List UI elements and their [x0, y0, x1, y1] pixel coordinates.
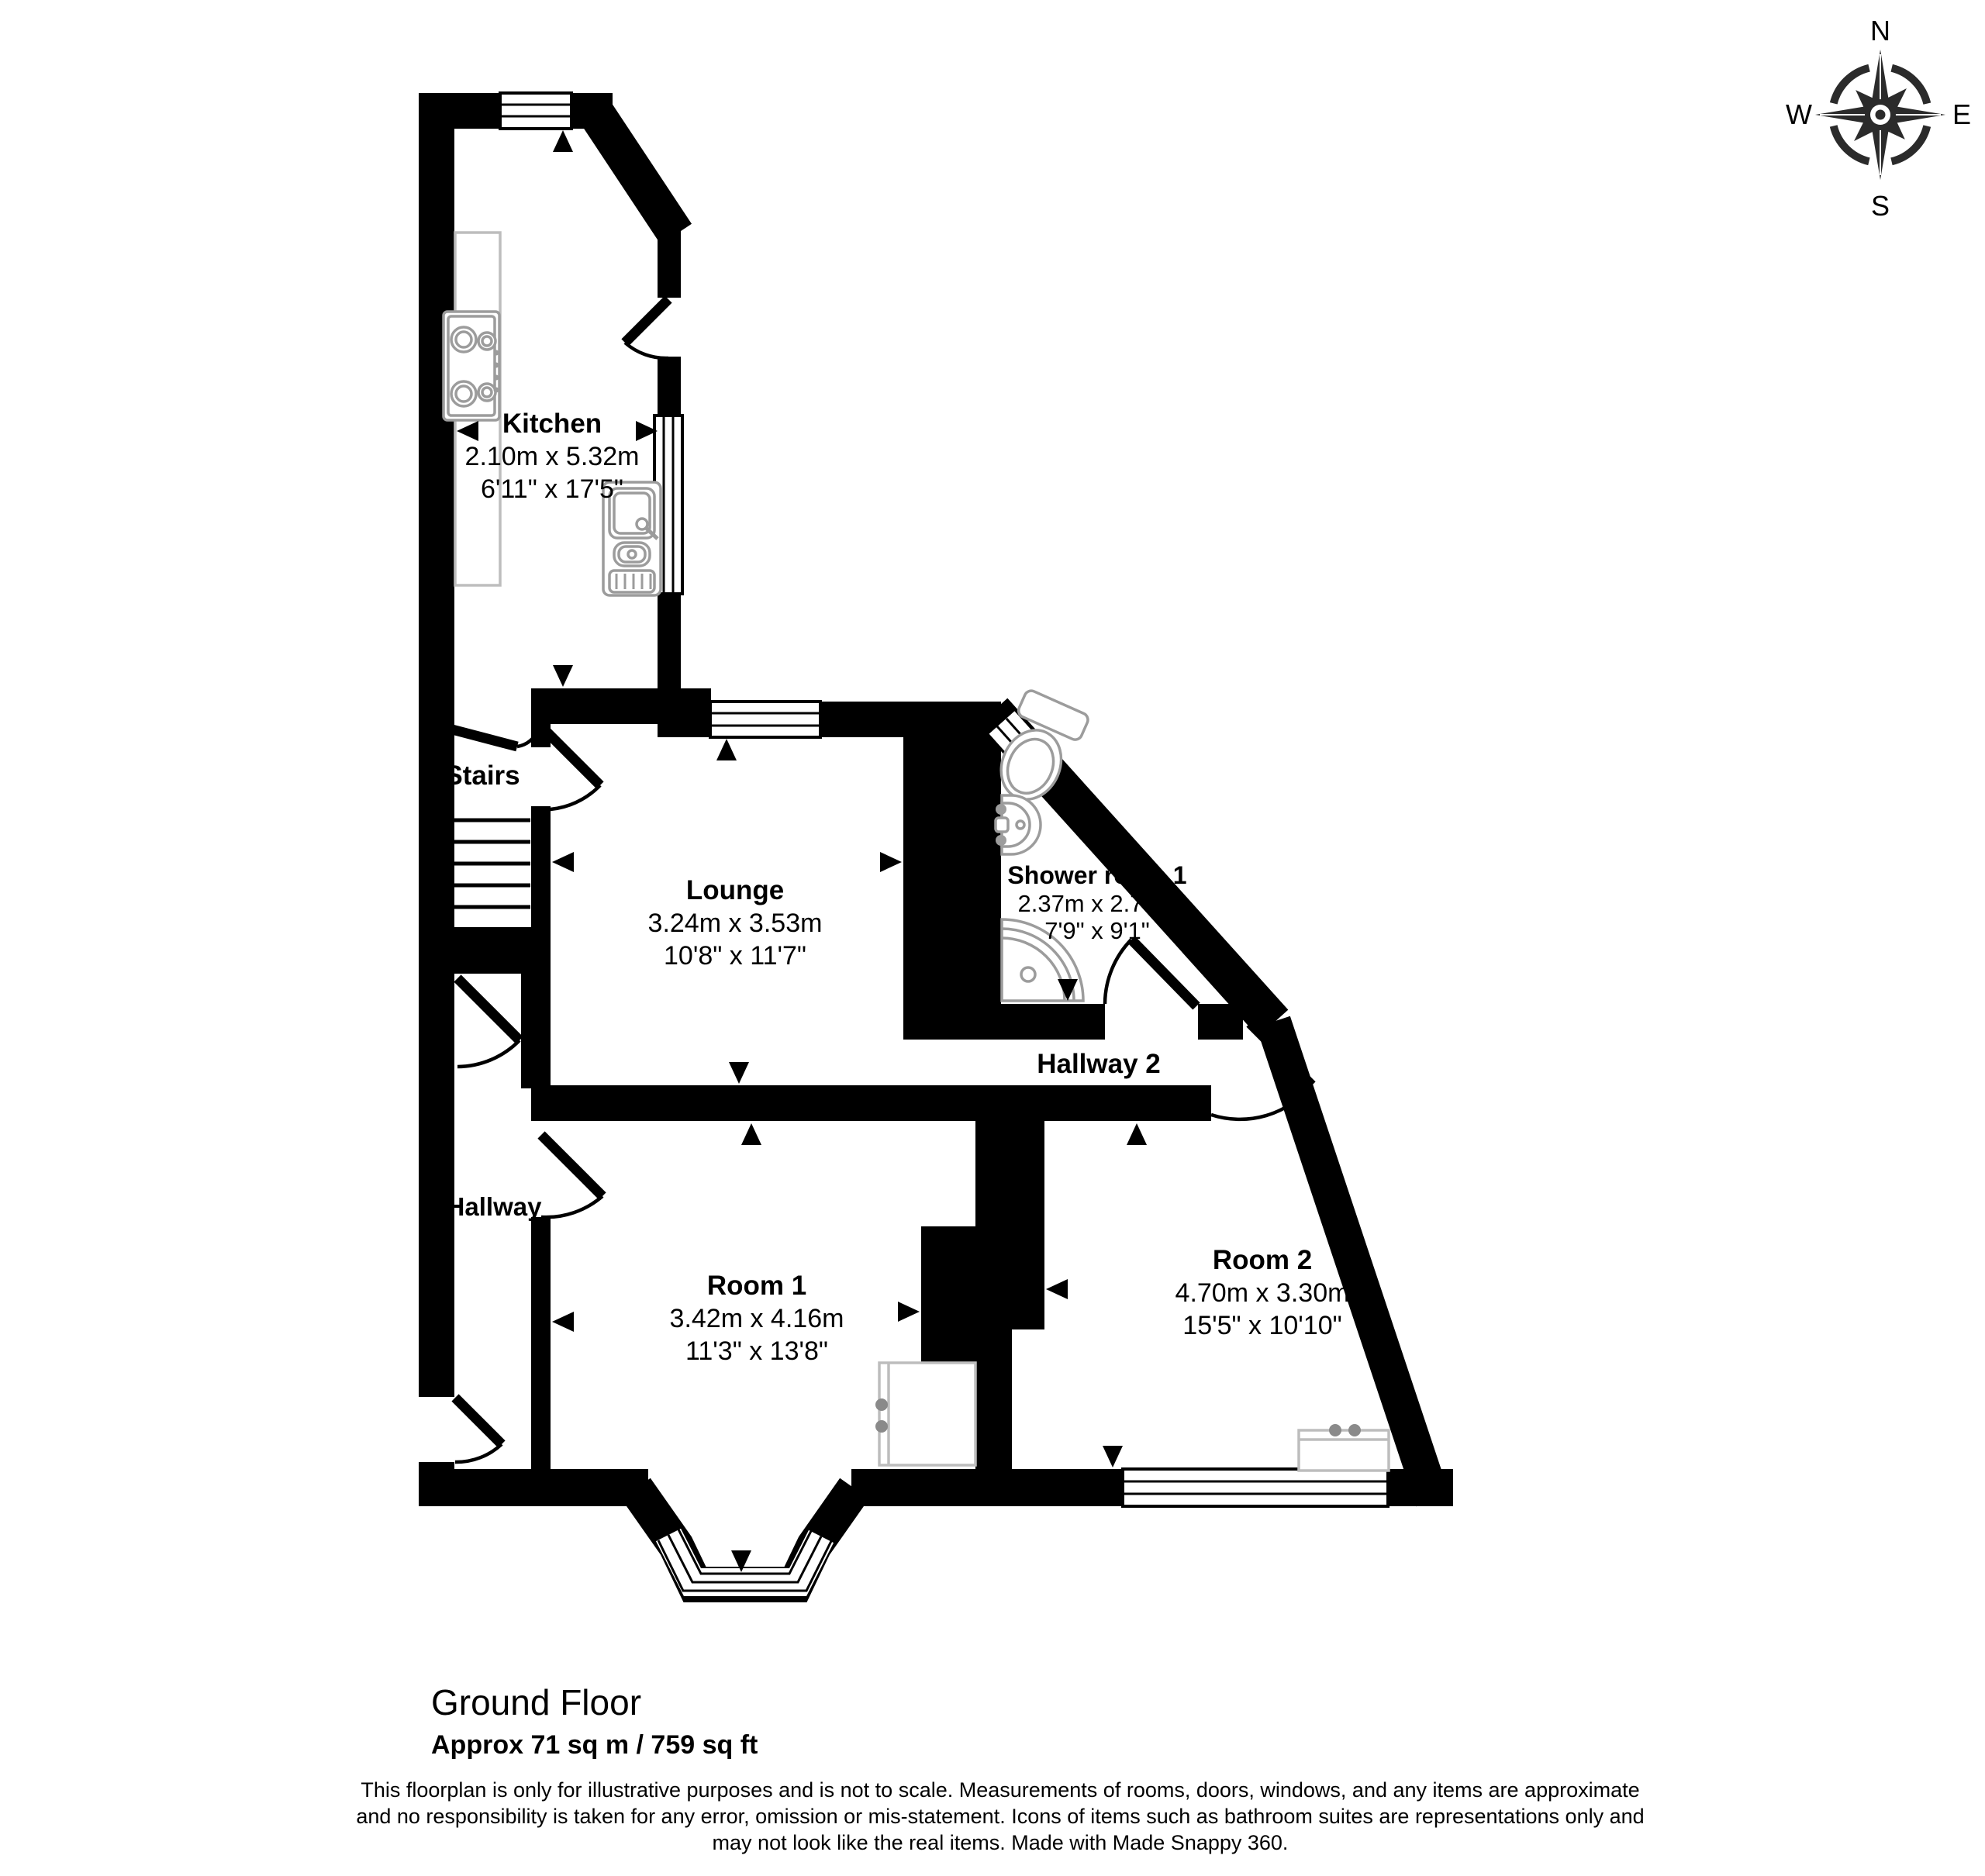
compass-label-e: E: [1952, 98, 1971, 130]
wall-rooms-top: [531, 1085, 1211, 1121]
room2-label: Room 2: [1213, 1245, 1312, 1275]
wall-kitchen-top-a: [419, 93, 504, 129]
wall-chimney-block: [903, 702, 1001, 1013]
wall-shower-bottom-a: [903, 1004, 1105, 1040]
disclaimer-line-2: and no responsibility is taken for any e…: [356, 1805, 1644, 1828]
room1-arrow-right: [898, 1302, 920, 1322]
wall-kitchen-right-b: [658, 357, 681, 417]
stairs-label: Stairs: [444, 760, 520, 791]
room1-arrow-left: [552, 1312, 574, 1332]
room2-bottom-window: [1123, 1469, 1388, 1506]
disclaimer-line-1: This floorplan is only for illustrative …: [361, 1778, 1639, 1802]
lounge-label: Lounge: [686, 875, 784, 905]
wall-divider-main: [975, 1085, 1012, 1469]
kitchen-arrow-up: [553, 130, 573, 152]
wall-stairs-right: [531, 806, 551, 929]
lounge-top-window: [710, 702, 820, 737]
hob-icon: [444, 312, 499, 420]
kitchen-arrow-down: [553, 665, 573, 687]
room2-dim-imperial: 15'5" x 10'10": [1182, 1311, 1341, 1340]
room2-dim-metric: 4.70m x 3.30m: [1175, 1278, 1350, 1308]
room1-vanity-unit: [875, 1363, 975, 1465]
shower-room-dim-metric: 2.37m x 2.77m: [1017, 890, 1176, 917]
lounge-arrow-up: [716, 739, 737, 760]
kitchen-dim-metric: 2.10m x 5.32m: [465, 442, 640, 471]
hallway-top-door: [457, 978, 520, 1067]
room2-desk-unit: [1299, 1424, 1389, 1471]
room2-arrow-up: [1127, 1123, 1147, 1145]
room-labels: Kitchen 2.10m x 5.32m 6'11" x 17'5" Stai…: [444, 409, 1349, 1366]
wall-stairs-bottom-band: [419, 927, 551, 974]
room1-arrow-up: [741, 1123, 761, 1145]
room2-arrow-left: [1046, 1279, 1068, 1299]
compass-label-n: N: [1870, 15, 1890, 47]
floor-area: Approx 71 sq m / 759 sq ft: [431, 1730, 758, 1760]
room1-dim-metric: 3.42m x 4.16m: [670, 1304, 844, 1333]
wall-bottom-a: [419, 1469, 648, 1506]
compass-label-w: W: [1786, 98, 1812, 130]
lounge-arrow-left: [552, 852, 574, 872]
wall-kitchen-diagonal: [594, 110, 676, 234]
kitchen-dim-imperial: 6'11" x 17'5": [481, 474, 623, 504]
room1-label: Room 1: [707, 1271, 806, 1301]
lounge-dim-metric: 3.24m x 3.53m: [648, 909, 823, 938]
room1-dim-imperial: 11'3" x 13'8": [685, 1336, 828, 1366]
front-door: [455, 1398, 502, 1462]
room2-arrow-down: [1103, 1446, 1123, 1467]
floor-title: Ground Floor: [431, 1682, 641, 1723]
room1-door: [541, 1135, 602, 1217]
kitchen-top-window: [500, 93, 571, 129]
wall-corridor-right: [521, 974, 551, 1088]
basin-icon: [996, 795, 1041, 854]
wall-kitchen-right-c: [658, 592, 681, 690]
wall-bottom-b: [851, 1469, 1123, 1506]
kitchen-label: Kitchen: [502, 409, 602, 439]
floorplan-canvas: N E S W Kitchen 2.10m x 5.32m 6'11" x 17…: [0, 0, 1985, 1876]
lounge-arrow-down: [729, 1062, 749, 1084]
shower-room-dim-imperial: 7'9" x 9'1": [1044, 917, 1150, 944]
hallway-label: Hallway: [447, 1192, 543, 1221]
wall-divider-flange-right: [1012, 1085, 1044, 1329]
lounge-dim-imperial: 10'8" x 11'7": [664, 941, 806, 971]
wall-room1-left: [531, 1217, 551, 1471]
lounge-arrow-right: [880, 852, 902, 872]
disclaimer-line-3: may not look like the real items. Made w…: [713, 1831, 1289, 1854]
hallway2-label: Hallway 2: [1037, 1049, 1161, 1079]
footer-text: Ground Floor Approx 71 sq m / 759 sq ft …: [356, 1682, 1644, 1854]
kitchen-side-door: [625, 299, 668, 358]
compass-rose: N E S W: [1786, 15, 1971, 222]
floorplan-page: N E S W Kitchen 2.10m x 5.32m 6'11" x 17…: [0, 0, 1985, 1876]
stairs-treads: [454, 820, 530, 907]
shower-room-label: Shower room 1: [1007, 861, 1186, 889]
compass-label-s: S: [1871, 190, 1890, 222]
